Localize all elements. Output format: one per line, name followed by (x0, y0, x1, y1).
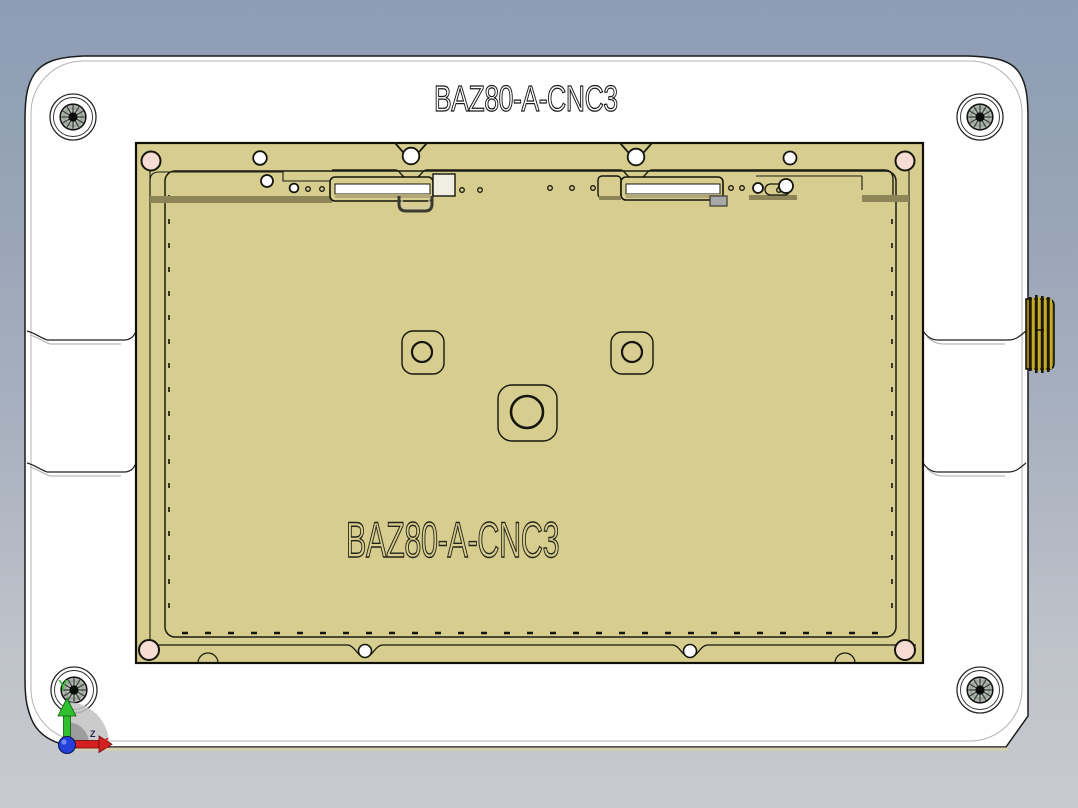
z-axis-label: Z (90, 729, 96, 739)
fixture-nest[interactable]: BAZ80-A-CNC3 (136, 143, 923, 663)
socket-head-screw-icon[interactable] (957, 94, 1003, 140)
clamp-foot (710, 196, 727, 206)
part-number-engraving: BAZ80-A-CNC3 (346, 512, 559, 568)
cad-viewport[interactable]: BAZ80-A-CNC3 BAZ80-A-CNC3 (0, 0, 1078, 808)
clamp-bar-right[interactable] (621, 177, 723, 200)
x-axis-label: X (99, 735, 109, 752)
clamp-foot (599, 196, 621, 200)
locating-pin[interactable] (139, 640, 159, 660)
triad-origin-highlight (61, 739, 66, 744)
locating-pin[interactable] (895, 640, 915, 660)
knurled-thumbscrew-icon[interactable] (1026, 295, 1054, 373)
shadow-strip (150, 196, 332, 203)
socket-head-screw-icon[interactable] (957, 667, 1003, 713)
shadow-strip (862, 195, 909, 202)
view-title: BAZ80-A-CNC3 (434, 78, 618, 119)
y-axis-label: Y (58, 677, 68, 694)
shadow-strip (749, 195, 797, 200)
locating-pin[interactable] (896, 152, 915, 171)
fixture-body[interactable] (136, 143, 923, 663)
latch-block[interactable] (433, 174, 455, 196)
clamp-bar-left[interactable] (330, 177, 433, 201)
clamp-end-block[interactable] (598, 176, 621, 198)
base-plate-bottom-edge (64, 748, 1008, 751)
locating-pin[interactable] (142, 152, 161, 171)
triad-origin-ball[interactable] (59, 737, 76, 754)
cad-scene[interactable]: BAZ80-A-CNC3 BAZ80-A-CNC3 (0, 0, 1078, 808)
socket-head-screw-icon[interactable] (50, 94, 96, 140)
